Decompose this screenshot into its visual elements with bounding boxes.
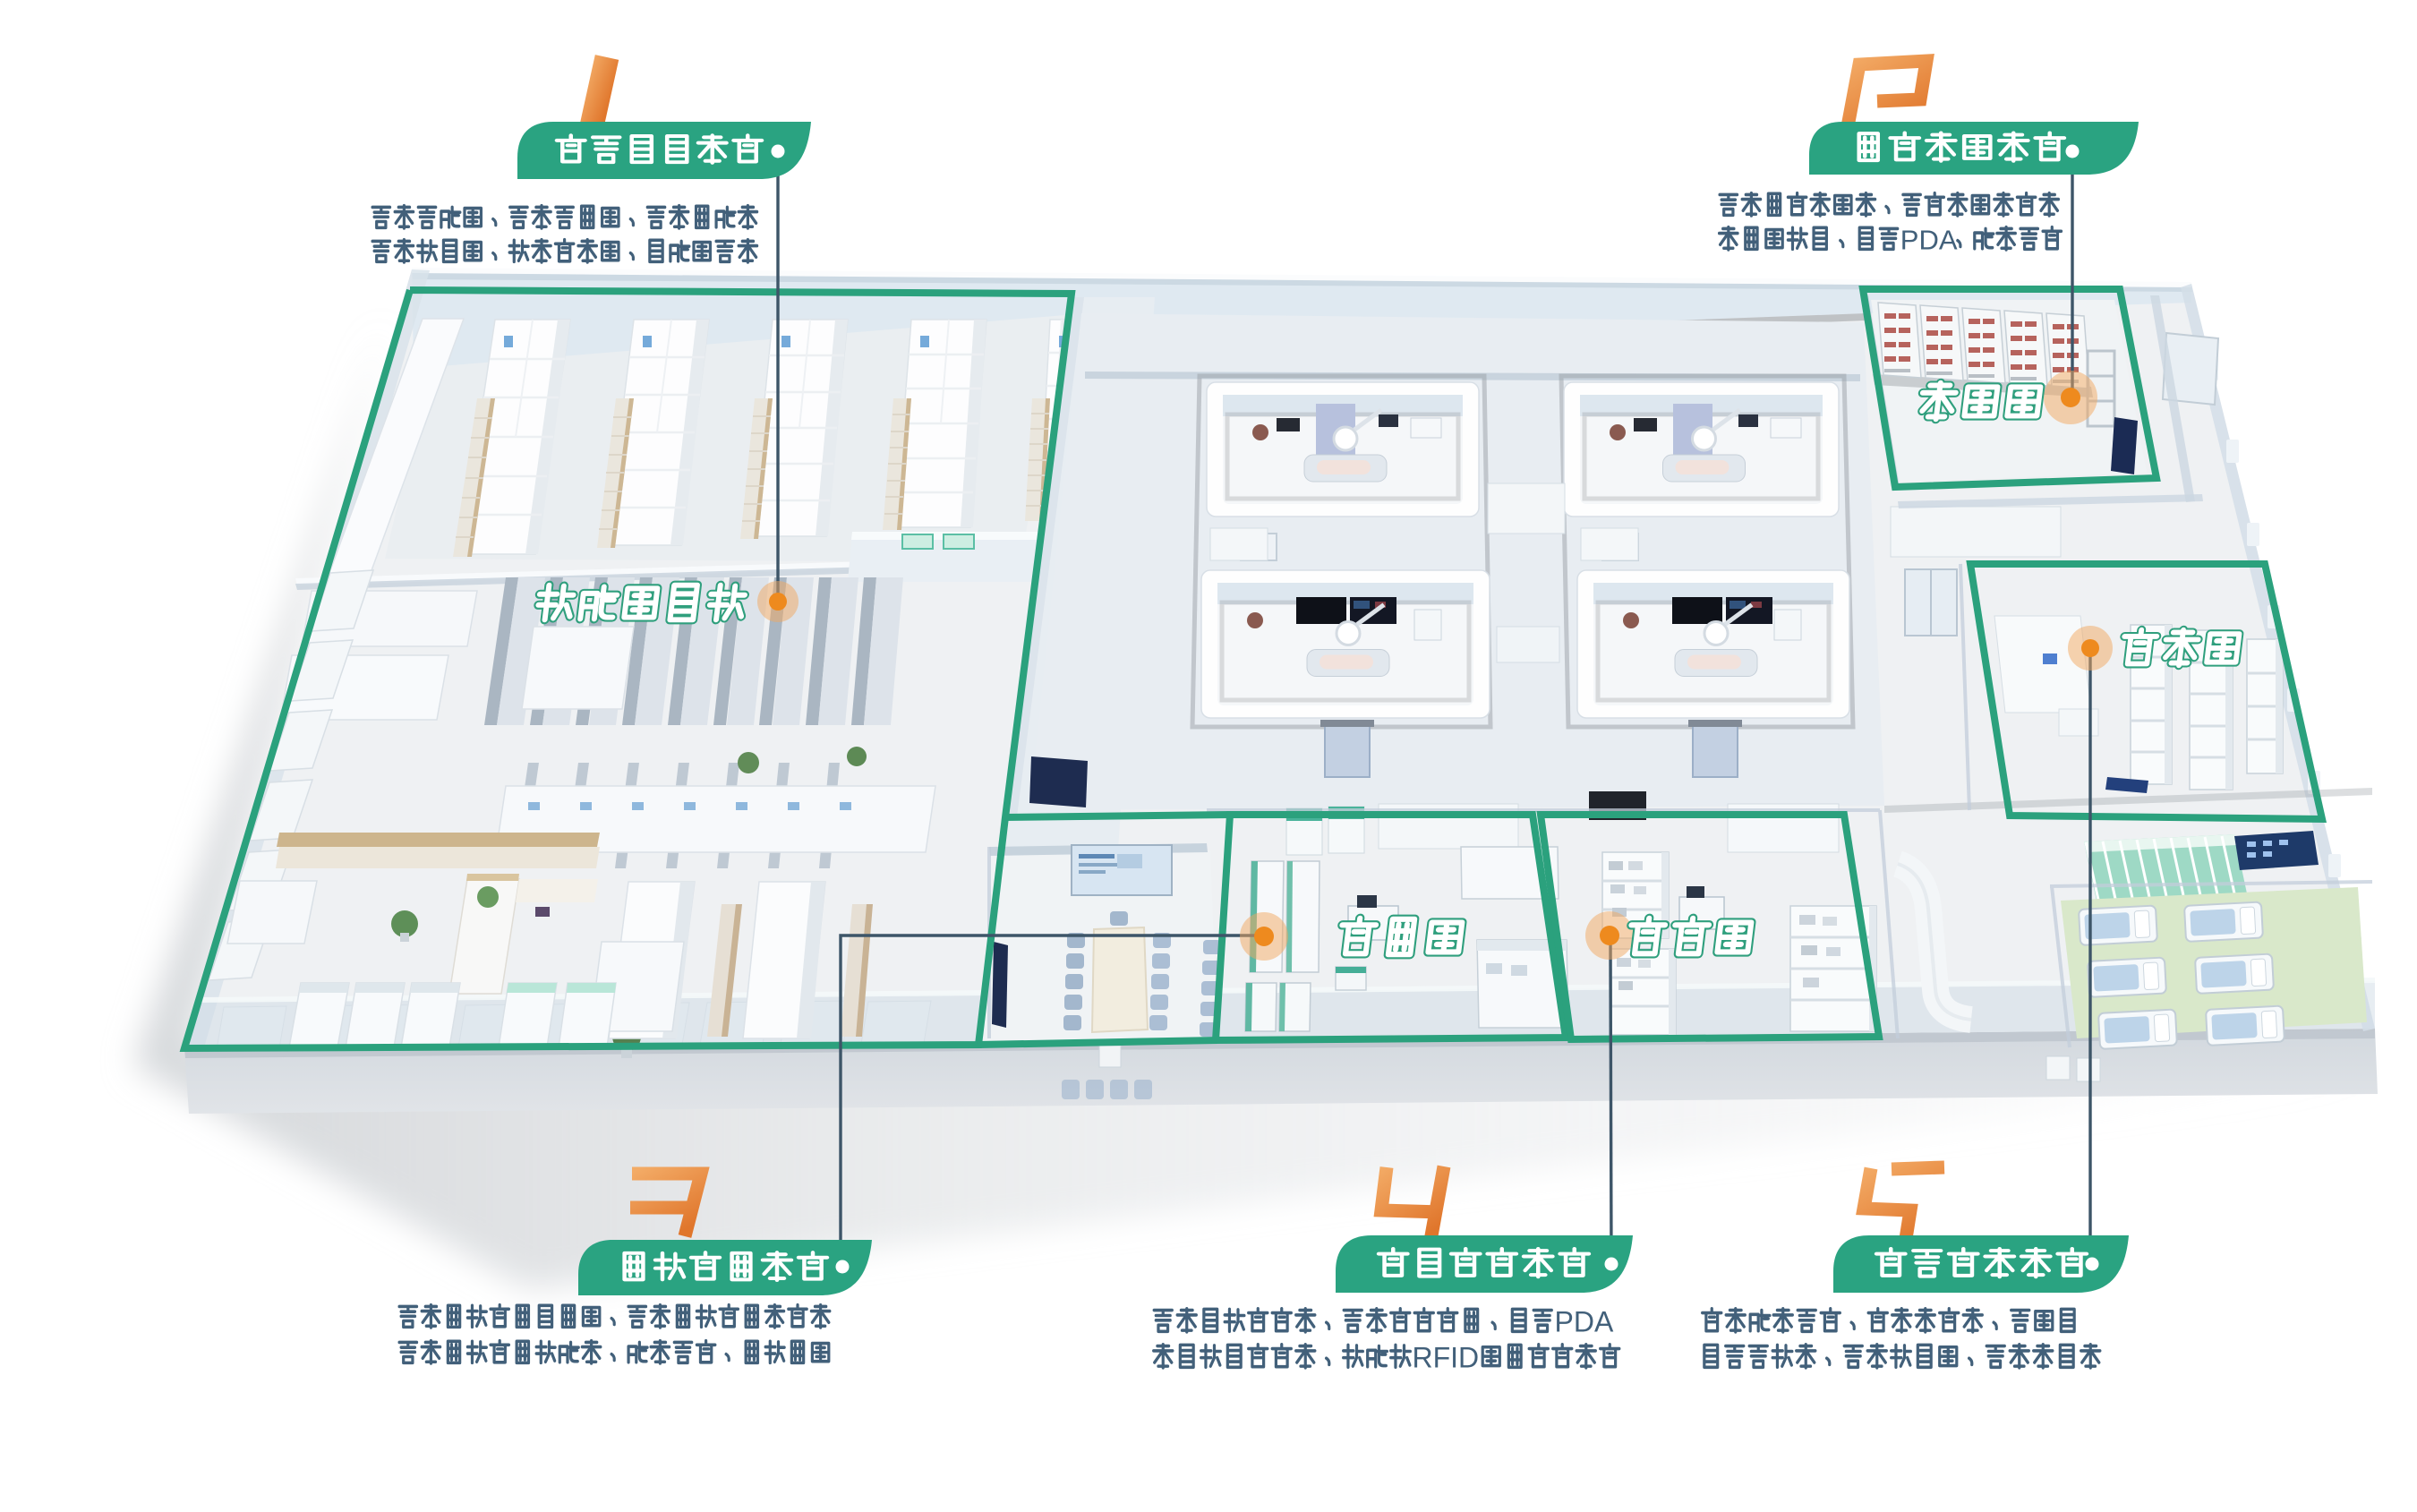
svg-text:PDA: PDA bbox=[1555, 1306, 1614, 1338]
svg-text:PDA: PDA bbox=[1900, 225, 1958, 256]
svg-text:RFID: RFID bbox=[1413, 1342, 1480, 1374]
